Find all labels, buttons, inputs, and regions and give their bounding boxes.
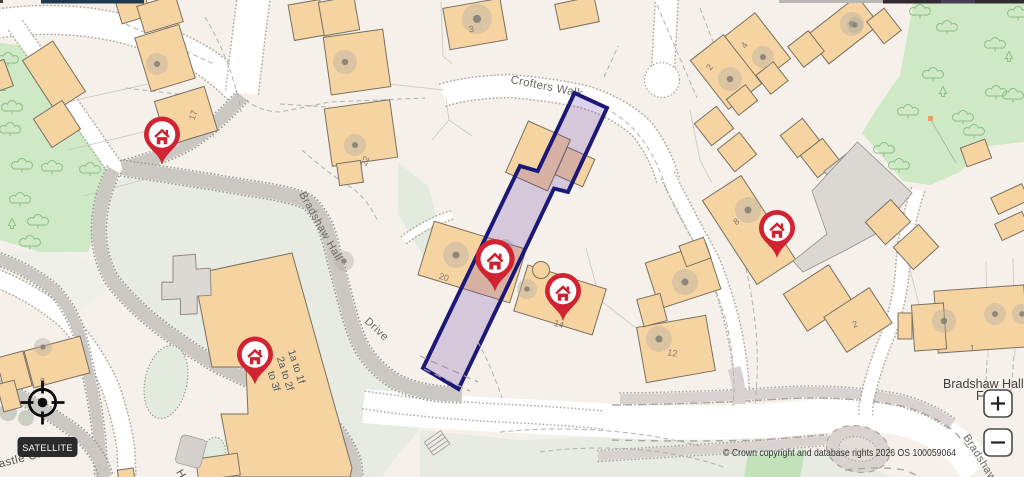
svg-text:F: F	[976, 389, 984, 403]
svg-text:12: 12	[667, 347, 678, 358]
svg-text:© Crown copyright and database: © Crown copyright and database rights 20…	[723, 448, 956, 459]
svg-text:SATELLITE: SATELLITE	[22, 443, 73, 453]
svg-text:1: 1	[969, 343, 975, 353]
